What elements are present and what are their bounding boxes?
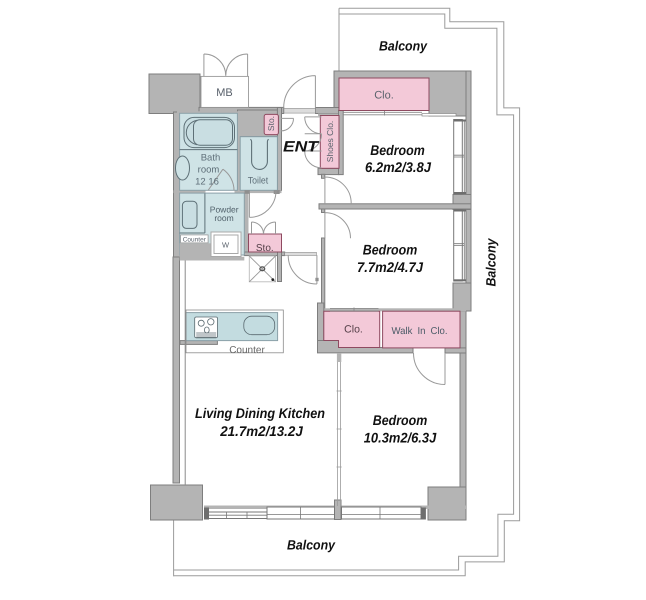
svg-text:W: W bbox=[222, 241, 230, 250]
svg-text:room: room bbox=[214, 213, 233, 223]
svg-text:Shoes Clo.: Shoes Clo. bbox=[325, 121, 335, 163]
svg-text:Living Dining Kitchen: Living Dining Kitchen bbox=[195, 405, 325, 421]
svg-text:Toilet: Toilet bbox=[248, 176, 269, 187]
svg-text:Balcony: Balcony bbox=[484, 237, 499, 286]
svg-text:Sto.: Sto. bbox=[266, 116, 276, 131]
svg-text:21.7m2/13.2J: 21.7m2/13.2J bbox=[219, 423, 304, 439]
svg-text:MB: MB bbox=[216, 87, 233, 99]
svg-text:Bedroom: Bedroom bbox=[363, 242, 418, 258]
svg-text:Walk In Clo.: Walk In Clo. bbox=[392, 326, 448, 337]
svg-text:Clo.: Clo. bbox=[374, 90, 394, 102]
svg-text:Clo.: Clo. bbox=[344, 324, 363, 336]
svg-text:10.3m2/6.3J: 10.3m2/6.3J bbox=[364, 430, 438, 446]
svg-text:room: room bbox=[198, 165, 220, 176]
svg-text:Bedroom: Bedroom bbox=[370, 142, 425, 158]
svg-text:Bedroom: Bedroom bbox=[373, 412, 428, 428]
svg-text:Sto.: Sto. bbox=[256, 243, 274, 254]
svg-text:6.2m2/3.8J: 6.2m2/3.8J bbox=[365, 159, 432, 175]
svg-text:Bath: Bath bbox=[201, 153, 221, 164]
svg-text:7.7m2/4.7J: 7.7m2/4.7J bbox=[357, 259, 424, 275]
svg-text:Balcony: Balcony bbox=[287, 538, 336, 553]
svg-text:Balcony: Balcony bbox=[379, 39, 428, 54]
svg-text:Counter: Counter bbox=[229, 345, 265, 356]
svg-text:ENT: ENT bbox=[283, 139, 320, 156]
svg-text:Counter: Counter bbox=[183, 236, 207, 243]
svg-text:12 16: 12 16 bbox=[195, 177, 219, 188]
